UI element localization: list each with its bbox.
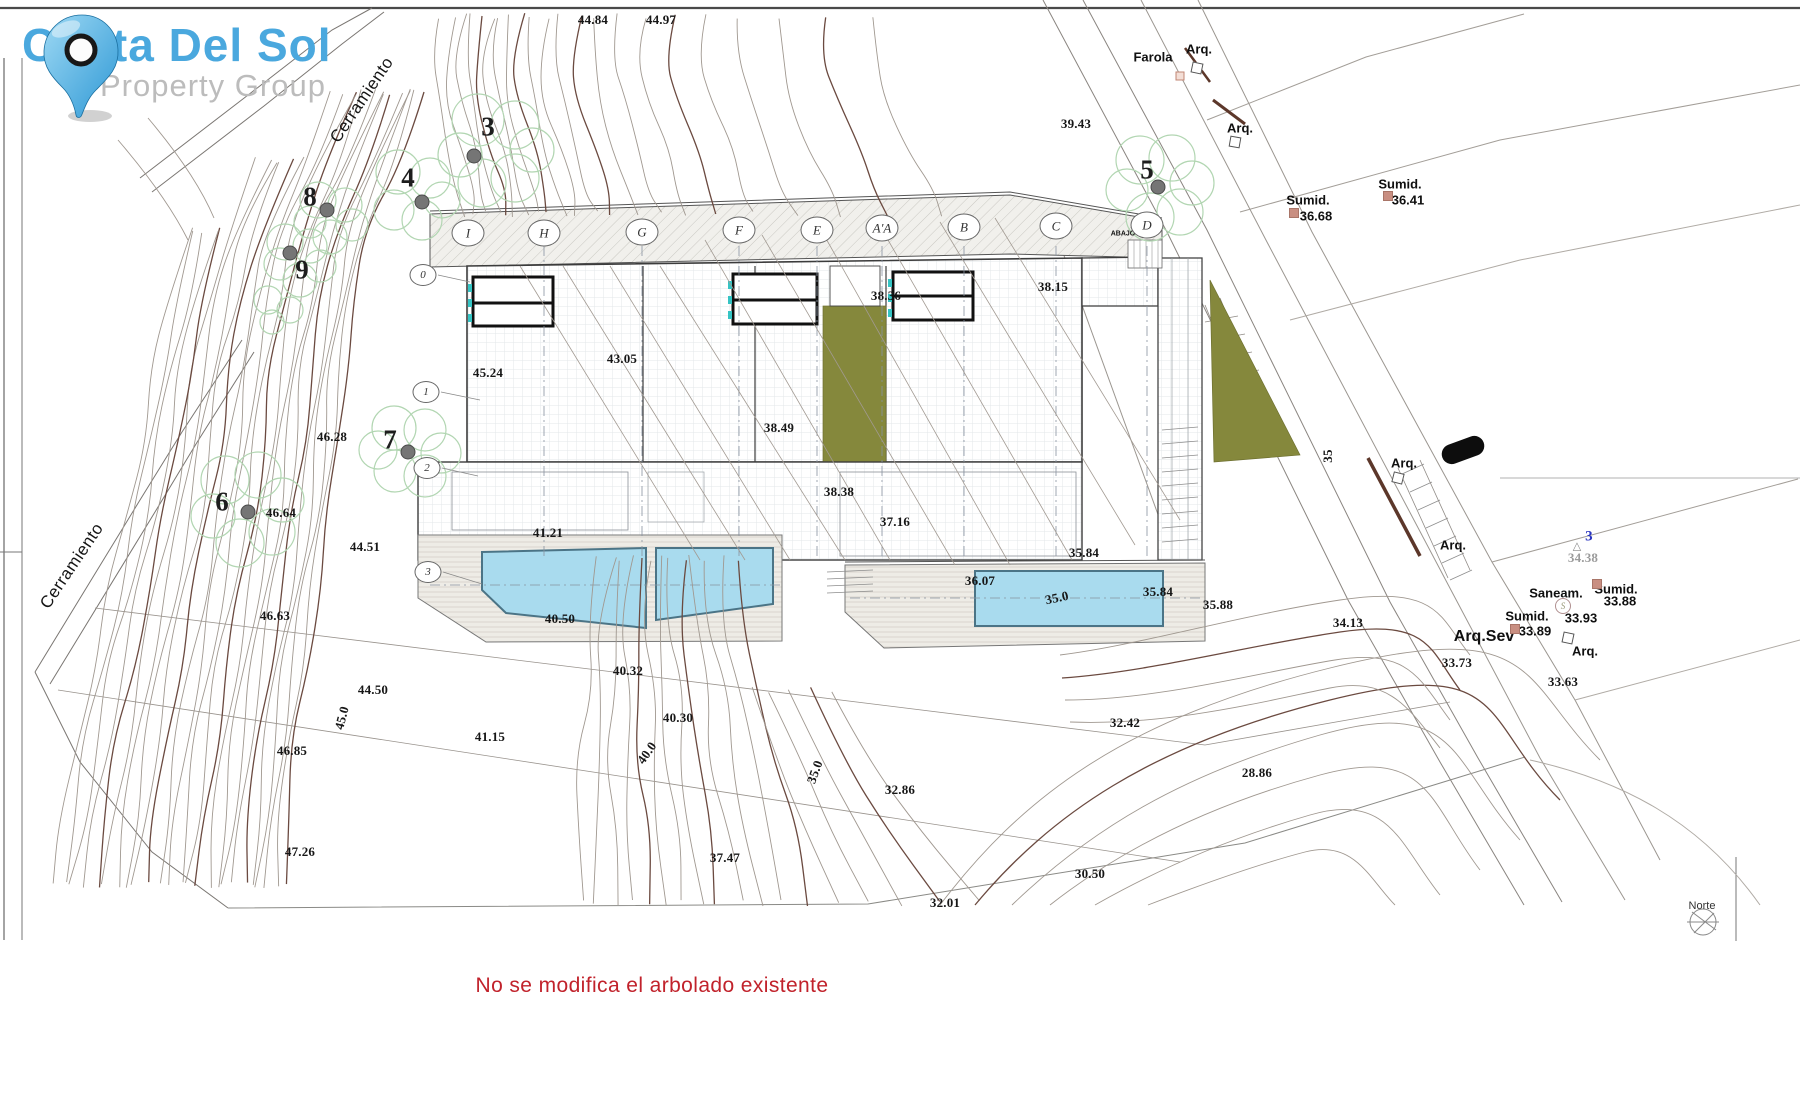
abajo-stair <box>1128 240 1162 268</box>
note-text: No se modifica el arbolado existente <box>476 974 829 998</box>
site-plan-drawing <box>0 0 1800 1100</box>
east-wing <box>1158 258 1202 560</box>
north-compass-icon <box>1687 909 1719 935</box>
upper-terrace-strip <box>430 195 1162 267</box>
site-plan-canvas: 44.8444.9739.4338.3638.1543.0545.2438.49… <box>0 0 1800 1100</box>
olive-triangle <box>1210 280 1300 462</box>
road-lines <box>1043 0 1800 905</box>
building-complex <box>418 192 1300 648</box>
pool-right <box>975 571 1163 626</box>
logo-subtitle: Property Group <box>100 68 326 104</box>
north-label: Norte <box>1689 900 1716 912</box>
map-pin-icon <box>38 12 124 124</box>
olive-planter-strip <box>823 306 886 462</box>
logo: Costa Del Sol Property Group <box>10 12 490 122</box>
